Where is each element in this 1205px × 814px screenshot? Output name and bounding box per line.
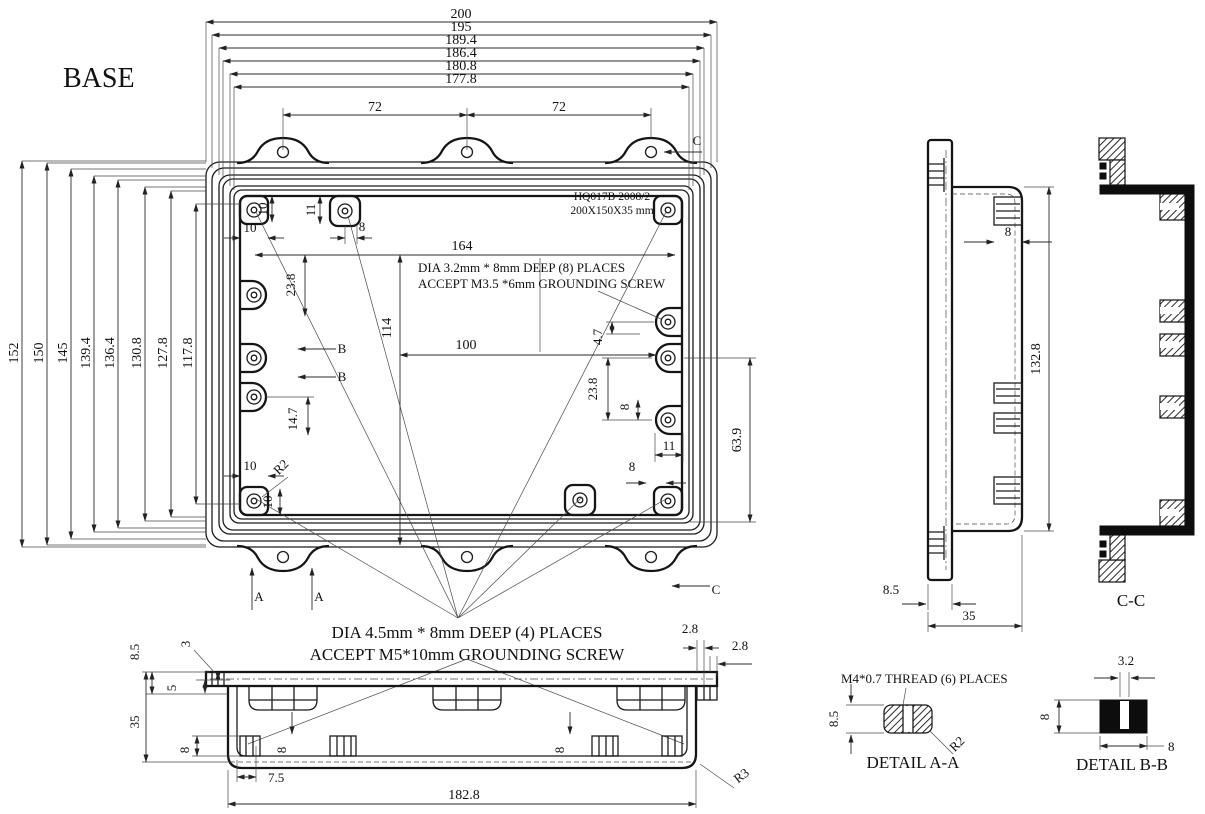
dim-front-8-5: 8.5 <box>127 644 142 660</box>
dim-145: 145 <box>56 343 71 364</box>
dim-10-width: 10 <box>244 220 257 235</box>
note-8places-line1: DIA 3.2mm * 8mm DEEP (8) PLACES <box>418 260 625 275</box>
dim-11-right: 11 <box>663 438 676 453</box>
section-mark-c2: C <box>712 582 721 597</box>
cad-drawing: BASE <box>0 0 1205 814</box>
dim-detail-a-8-5: 8.5 <box>826 711 841 727</box>
dim-114: 114 <box>380 318 395 338</box>
dim-detail-b-8-left: 8 <box>1037 714 1052 721</box>
paper <box>0 0 1205 814</box>
dim-front-8-out: 8 <box>177 747 192 754</box>
thread-note: M4*0.7 THREAD (6) PLACES <box>841 671 1008 686</box>
dim-8-top: 8 <box>359 219 366 234</box>
dim-front-2-8b: 2.8 <box>732 638 748 653</box>
dim-23-8-left: 23.8 <box>283 274 298 297</box>
dim-detail-b-3-2: 3.2 <box>1118 653 1134 668</box>
dim-117-8: 117.8 <box>181 338 196 369</box>
dim-152: 152 <box>7 343 22 364</box>
note-8places-line2: ACCEPT M3.5 *6mm GROUNDING SCREW <box>418 276 666 291</box>
section-mark-a1: A <box>254 589 264 604</box>
dim-8-corner: 8 <box>629 459 636 474</box>
section-mark-b1: B <box>338 341 347 356</box>
dim-detail-b-8-bottom: 8 <box>1168 739 1175 754</box>
dim-10-boss: 10 <box>255 203 270 216</box>
note-4places-line2: ACCEPT M5*10mm GROUNDING SCREW <box>310 645 626 664</box>
dim-front-8-in1: 8 <box>274 747 289 754</box>
dim-front-2-8a: 2.8 <box>682 621 698 636</box>
dim-front-182-8: 182.8 <box>448 788 480 803</box>
dim-4-7: 4.7 <box>590 328 605 345</box>
dim-150: 150 <box>32 343 47 364</box>
dim-front-35: 35 <box>127 716 142 729</box>
dim-177-8: 177.8 <box>445 72 477 87</box>
note-4places-line1: DIA 4.5mm * 8mm DEEP (4) PLACES <box>332 623 603 642</box>
dim-139-4: 139.4 <box>79 337 94 369</box>
dim-130-8: 130.8 <box>130 337 145 369</box>
dim-72-left: 72 <box>368 100 382 115</box>
detail-a-label: DETAIL A-A <box>867 753 961 772</box>
dim-164: 164 <box>452 239 473 254</box>
dim-10-width2: 10 <box>244 458 257 473</box>
dim-14-7: 14.7 <box>285 407 300 430</box>
dim-72-right: 72 <box>552 100 566 115</box>
dim-front-3: 3 <box>178 641 193 648</box>
dim-front-7-5: 7.5 <box>268 770 284 785</box>
detail-b-label: DETAIL B-B <box>1076 755 1168 774</box>
dim-front-5: 5 <box>164 685 179 692</box>
dim-side-8-5: 8.5 <box>883 582 899 597</box>
dim-11-boss: 11 <box>303 204 318 217</box>
dim-side-8: 8 <box>1005 224 1012 239</box>
drawing-sheet: BASE <box>0 0 1205 814</box>
dim-front-8-in2: 8 <box>552 747 567 754</box>
dim-side-132-8: 132.8 <box>1029 343 1044 375</box>
section-mark-a2: A <box>314 589 324 604</box>
section-mark-b2: B <box>338 369 347 384</box>
part-number: HQ017B 2008/2 <box>574 191 651 203</box>
dim-23-8-right: 23.8 <box>585 378 600 401</box>
view-title: BASE <box>63 63 135 94</box>
dim-100: 100 <box>456 338 477 353</box>
dim-side-35: 35 <box>963 608 976 623</box>
dim-10-boss2: 10 <box>260 496 275 509</box>
part-size: 200X150X35 mm <box>570 205 653 217</box>
cc-section-label: C-C <box>1117 591 1145 610</box>
dim-127-8: 127.8 <box>156 337 171 369</box>
dim-8-right: 8 <box>617 404 632 411</box>
dim-63-9: 63.9 <box>730 428 745 453</box>
section-mark-c1: C <box>693 133 702 148</box>
dim-136-4: 136.4 <box>103 337 118 369</box>
